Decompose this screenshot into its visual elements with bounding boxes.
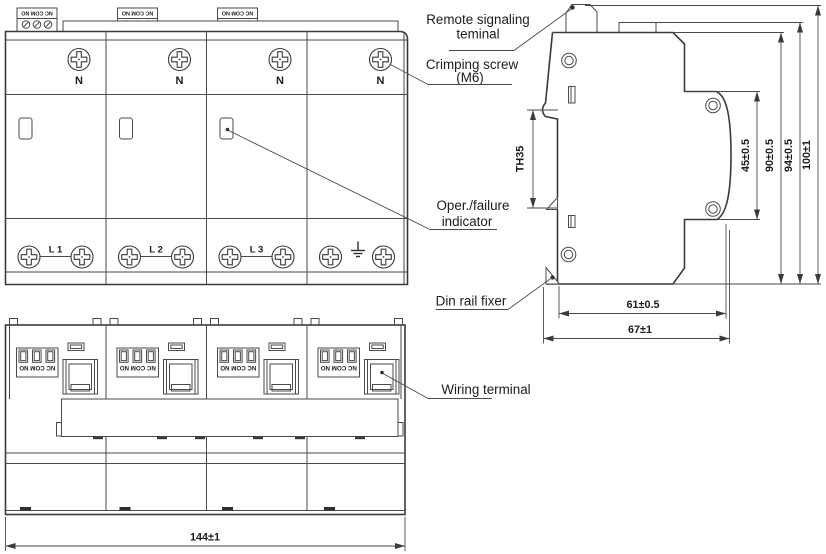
side-view: TH35 45±0.5 90±0.5 94±0.5 100±1 (515, 5, 822, 344)
annotation-text: indicator (442, 214, 493, 229)
neutral-label-2: N (176, 75, 184, 87)
annotation-text: Remote signaling (426, 12, 529, 27)
side-slot (569, 87, 576, 104)
side-screw-icon (562, 53, 577, 68)
nc-com-no-label: NC COM NO (220, 364, 256, 371)
side-screw-icon (706, 202, 721, 217)
busbar-cover (63, 21, 398, 32)
dim-text-144: 144±1 (190, 532, 220, 544)
nc-com-no-label: NC COM NO (321, 364, 357, 371)
side-profile-outline (546, 33, 731, 285)
phase-label-l1: L 1 (49, 245, 63, 256)
technical-drawing: NC COM NO NC COM NO NC COM NO (0, 0, 826, 554)
wiring-terminal (264, 360, 299, 395)
dimension-th35: TH35 (515, 110, 559, 208)
dimension-45: 45±0.5 (685, 92, 761, 220)
indicator-window-2 (120, 118, 133, 139)
nc-com-no-label: NC COM NO (120, 364, 156, 371)
neutral-label-4: N (377, 75, 385, 87)
side-slot (569, 216, 576, 228)
remote-terminal-block-1: NC COM NO (17, 8, 57, 32)
remote-terminal-profile (566, 5, 597, 33)
crimping-screw-icon (269, 49, 291, 71)
dimension-61: 61±0.5 (559, 224, 726, 319)
drawing-canvas: NC COM NO NC COM NO NC COM NO (0, 0, 826, 554)
annotation-text: Oper./failure (437, 198, 510, 213)
wiring-terminal (365, 360, 400, 395)
module-tabs (10, 319, 403, 326)
nc-com-no-label: NC COM NO (122, 9, 153, 15)
terminal-screw-icon (44, 21, 52, 29)
leader-dot (380, 371, 384, 375)
dim-text-90: 90±0.5 (764, 139, 776, 172)
leader-dot (570, 5, 574, 9)
dimension-144: 144±1 (6, 517, 406, 551)
leader-line (508, 278, 552, 310)
top-protrusion (619, 23, 656, 33)
dim-text-61: 61±0.5 (627, 299, 660, 311)
phase-label-l2: L 2 (149, 245, 163, 256)
annotation-text: (M6) (456, 70, 484, 85)
annotation-remote-signaling: Remote signaling teminal (426, 5, 574, 50)
side-screw-icon (706, 98, 721, 113)
neutral-label-3: N (276, 75, 284, 87)
neutral-label-1: N (75, 75, 83, 87)
front-view: NC COM NO NC COM NO NC COM NO (6, 8, 408, 285)
annotation-crimping-screw: Crimping screw (M6) (390, 57, 519, 85)
nc-com-no-label: NC COM NO (19, 364, 55, 371)
nc-com-no-label: NC COM NO (222, 9, 253, 15)
terminal-screw-icon (33, 21, 41, 29)
dim-text-100: 100±1 (801, 140, 813, 170)
leader-dot (550, 275, 554, 279)
annotation-text: Din rail fixer (436, 294, 507, 309)
dim-text-45: 45±0.5 (740, 139, 752, 172)
bottom-view: NC COM NO NC COM NO (6, 319, 406, 552)
cover-bar (57, 399, 404, 437)
indicator-window-1 (19, 118, 32, 139)
dim-text-th35: TH35 (515, 146, 527, 172)
annotation-text: Wiring terminal (441, 382, 530, 397)
terminal-screw-icon (22, 21, 30, 29)
dimension-90: 90±0.5 (673, 33, 784, 285)
annotation-din-rail-fixer: Din rail fixer (436, 278, 552, 310)
dim-text-67: 67±1 (628, 324, 652, 336)
annotation-text: teminal (456, 27, 499, 42)
side-profile-left-edge (543, 33, 558, 285)
dim-text-94: 94±0.5 (783, 139, 795, 172)
phase-label-l3: L 3 (250, 245, 264, 256)
crimping-screw-icon (169, 49, 191, 71)
dimension-67: 67±1 (544, 230, 730, 344)
crimping-screw-icon (68, 49, 90, 71)
wiring-terminal (63, 360, 98, 395)
leader-dot (226, 128, 230, 132)
nc-com-no-label: NC COM NO (21, 9, 52, 15)
crimping-screw-icon (370, 49, 392, 71)
side-screw-icon (561, 247, 576, 262)
wiring-terminal (164, 360, 199, 395)
